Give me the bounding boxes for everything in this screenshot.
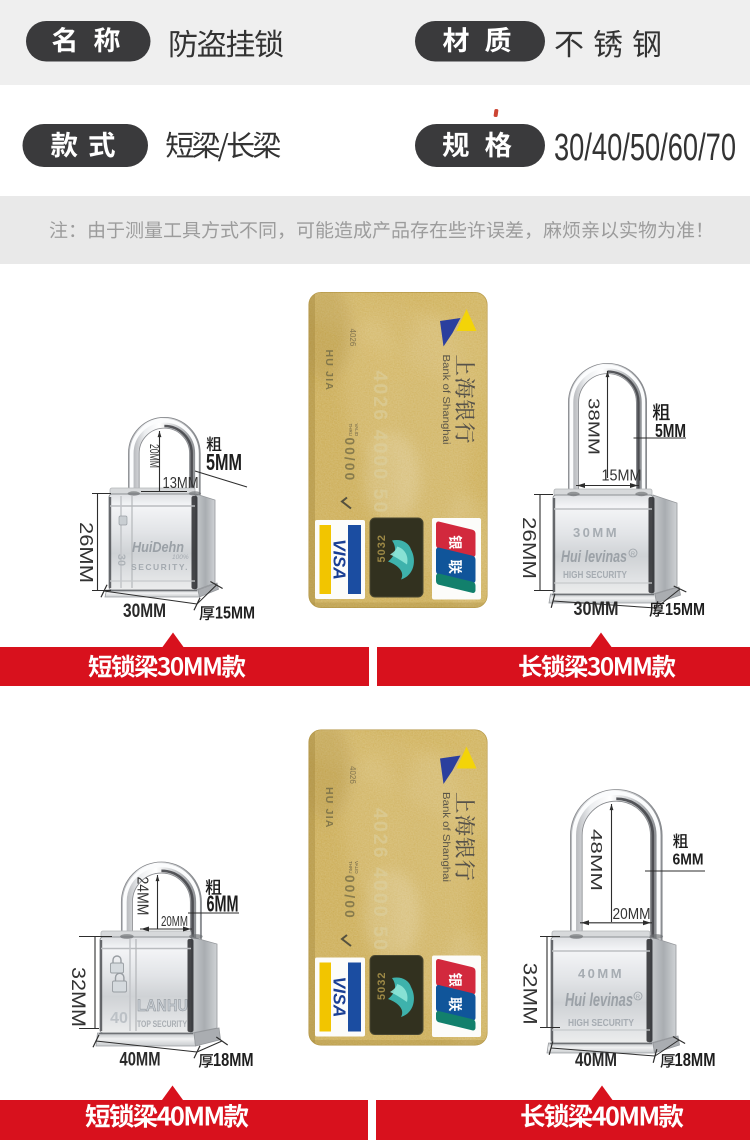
svg-text:TOP SECURITY: TOP SECURITY [137,1019,187,1030]
svg-text:4026 4000 50: 4026 4000 50 [369,371,390,515]
svg-text:15MM: 15MM [215,603,255,623]
svg-text:VISA: VISA [330,539,350,580]
svg-text:13MM: 13MM [163,475,199,492]
svg-text:LANHU: LANHU [137,996,188,1015]
svg-text:VALID: VALID [354,861,359,874]
svg-text:HU JIA: HU JIA [323,350,335,392]
svg-text:00/00: 00/00 [342,875,357,920]
svg-text:24MM: 24MM [134,877,151,916]
svg-text:THRU: THRU [348,861,353,874]
svg-text:20MM: 20MM [613,906,651,923]
svg-text:18MM: 18MM [213,1049,254,1070]
svg-text:100%: 100% [172,554,189,561]
svg-text:R: R [631,552,635,558]
svg-text:SECURITY.: SECURITY. [131,562,189,572]
svg-text:30MM: 30MM [573,525,619,540]
svg-text:30: 30 [115,554,127,566]
svg-text:5MM: 5MM [206,449,242,475]
svg-text:48MM: 48MM [587,829,604,891]
svg-text:5032: 5032 [376,534,388,562]
svg-text:40: 40 [110,1010,128,1027]
svg-text:18MM: 18MM [675,1049,716,1070]
svg-text:30MM: 30MM [574,599,619,620]
svg-text:30/40/50/60/70: 30/40/50/60/70 [554,127,736,169]
svg-text:R: R [636,995,640,1001]
svg-text:15MM: 15MM [602,468,642,485]
svg-text:15MM: 15MM [665,599,705,619]
svg-text:THRU: THRU [348,424,353,437]
svg-text:4026: 4026 [348,329,357,347]
svg-text:32MM: 32MM [519,963,540,1025]
svg-text:40MM: 40MM [578,966,624,981]
svg-text:Hui levinas: Hui levinas [561,547,627,566]
svg-text:VALID: VALID [354,424,359,437]
svg-text:HIGH SECURITY: HIGH SECURITY [568,1017,634,1029]
svg-text:40MM: 40MM [120,1050,161,1071]
svg-text:Bank of Shanghai: Bank of Shanghai [440,792,452,882]
svg-text:HU JIA: HU JIA [323,787,335,829]
svg-text:4026: 4026 [348,766,357,784]
svg-text:26MM: 26MM [519,517,539,579]
svg-text:20MM: 20MM [147,444,162,468]
svg-text:30MM: 30MM [123,601,166,622]
svg-text:20MM: 20MM [161,913,188,930]
svg-text:40MM: 40MM [575,1050,617,1071]
svg-text:Bank of Shanghai: Bank of Shanghai [440,355,452,445]
svg-text:HIGH SECURITY: HIGH SECURITY [563,570,627,581]
svg-text:5032: 5032 [376,972,388,1000]
svg-text:Hui levinas: Hui levinas [565,990,633,1010]
svg-text:VISA: VISA [330,977,350,1018]
svg-text:26MM: 26MM [76,522,96,583]
svg-text:32MM: 32MM [67,967,88,1027]
svg-text:6MM: 6MM [673,852,704,869]
svg-text:4026 4000 50: 4026 4000 50 [369,808,390,952]
svg-text:00/00: 00/00 [342,438,357,483]
svg-text:38MM: 38MM [585,398,602,455]
